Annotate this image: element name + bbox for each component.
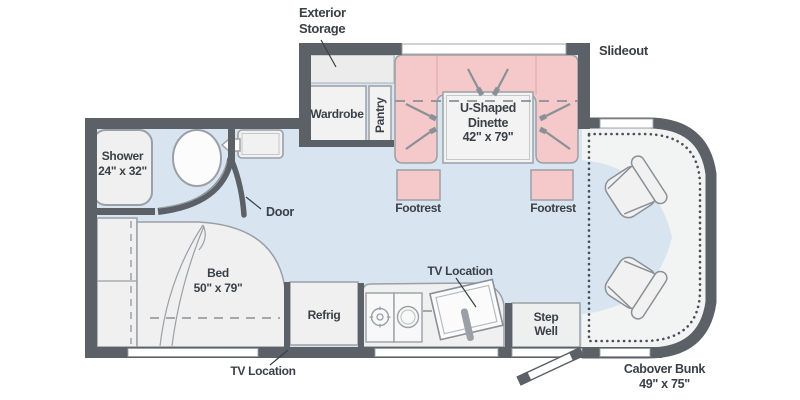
bed-label: Bed 50" x 79": [178, 266, 258, 295]
bedroom-window: [128, 349, 258, 357]
footrest-right-label: Footrest: [518, 201, 588, 216]
tv-location-bedroom-text: TV Location: [211, 364, 315, 379]
shower-line2: 24" x 32": [92, 164, 153, 179]
bed-line2: 50" x 79": [178, 281, 258, 296]
footrest-left: [397, 170, 440, 200]
cab-bottom-window: [600, 349, 650, 357]
shower-label: Shower 24" x 32": [92, 149, 153, 178]
footrest-right-text: Footrest: [518, 201, 588, 216]
cab-top-window: [600, 119, 653, 128]
bed-line1: Bed: [178, 266, 258, 281]
dinette-line2: Dinette: [448, 116, 528, 131]
toilet: [173, 130, 221, 186]
slideout-wall-window: [402, 44, 566, 54]
floor-plan-drawing: [0, 0, 800, 400]
wall-stepwell-left: [505, 303, 512, 348]
tv-location-bedroom-label: TV Location: [211, 364, 315, 379]
exterior-storage-line2: Storage: [299, 21, 389, 37]
wall-refrig-left: [284, 282, 290, 348]
dinette-label: U-Shaped Dinette 42" x 79": [448, 101, 528, 145]
shower-line1: Shower: [92, 149, 153, 164]
exterior-storage-label: Exterior Storage: [299, 5, 389, 37]
wall-top-rear: [85, 118, 310, 129]
footrest-left-label: Footrest: [383, 201, 453, 216]
tv-location-galley-label: TV Location: [408, 264, 512, 279]
wall-top-mid: [299, 43, 402, 55]
refrig-label: Refrig: [294, 308, 354, 323]
step-well-line1: Step: [512, 310, 580, 324]
footrest-right: [531, 170, 573, 200]
door-label: Door: [254, 205, 306, 220]
step-well-label: Step Well: [512, 310, 580, 338]
galley-window: [375, 349, 498, 357]
refrig-text: Refrig: [294, 308, 354, 323]
dinette-line3: 42" x 79": [448, 130, 528, 145]
cabover-bunk-label: Cabover Bunk 49" x 75": [602, 362, 727, 392]
wardrobe-label: Wardrobe: [308, 107, 366, 122]
slideout-text: Slideout: [599, 44, 689, 59]
wall-slideout-side: [578, 43, 590, 129]
cabover-line2: 49" x 75": [602, 377, 727, 392]
pantry-text: Pantry: [373, 85, 388, 145]
dinette-line1: U-Shaped: [448, 101, 528, 116]
exterior-storage-line1: Exterior: [299, 5, 389, 21]
tv-location-galley-text: TV Location: [408, 264, 512, 279]
door-text: Door: [254, 205, 306, 220]
wall-refrig-right: [358, 283, 364, 348]
wall-bath-bedroom: [85, 208, 155, 215]
floor-plan-canvas: Exterior Storage Slideout Wardrobe Pantr…: [0, 0, 800, 400]
step-well-line2: Well: [512, 324, 580, 338]
wardrobe-text: Wardrobe: [308, 107, 366, 122]
wall-bath-stub: [228, 120, 235, 162]
exterior-storage-bay: [310, 55, 394, 83]
footrest-left-text: Footrest: [383, 201, 453, 216]
pantry-label: Pantry: [373, 85, 388, 145]
cabover-line1: Cabover Bunk: [602, 362, 727, 377]
wall-mid-vertical: [299, 43, 311, 147]
slideout-label: Slideout: [599, 44, 689, 59]
bath-sink: [238, 130, 283, 158]
